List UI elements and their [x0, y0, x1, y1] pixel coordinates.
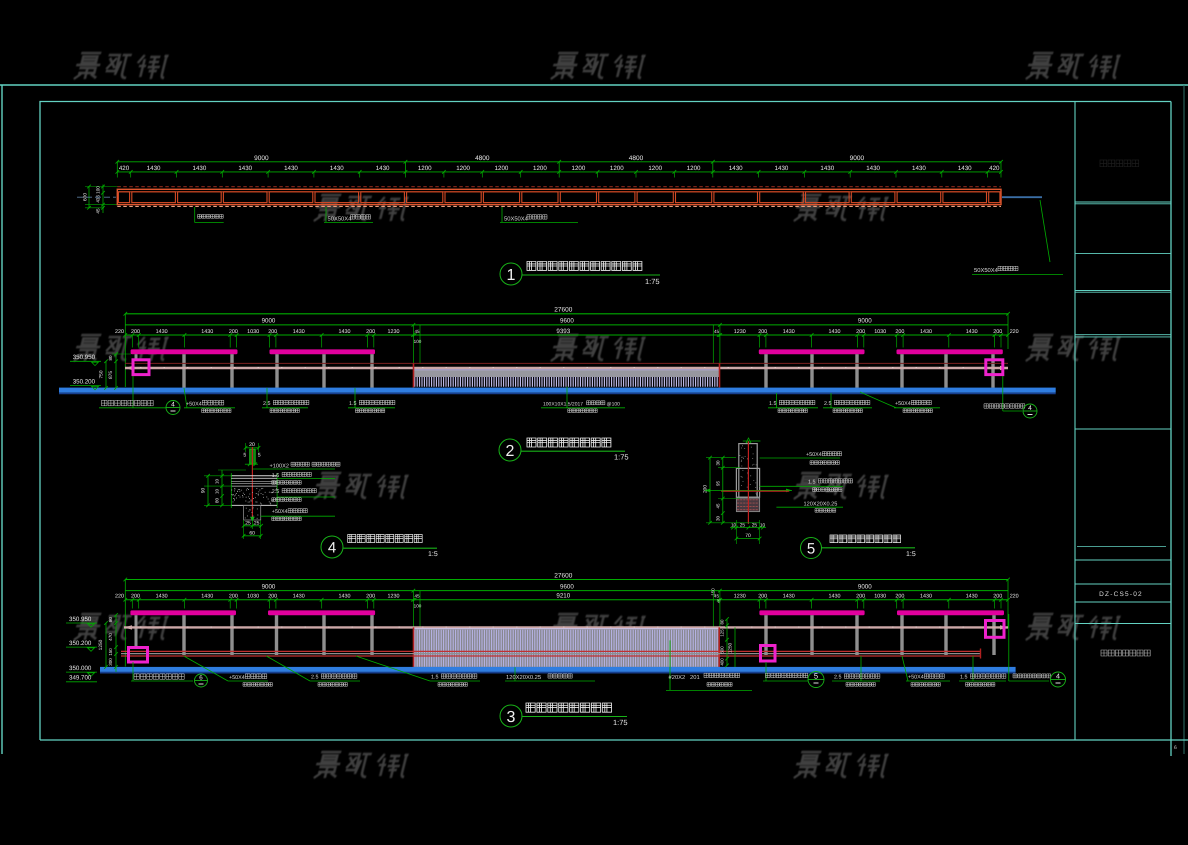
svg-text:350.950: 350.950 — [69, 616, 92, 623]
svg-text:1430: 1430 — [293, 594, 305, 600]
svg-text:2.5: 2.5 — [311, 675, 319, 681]
svg-text:1430: 1430 — [829, 329, 841, 335]
svg-text:1430: 1430 — [783, 594, 795, 600]
svg-text:1: 1 — [507, 267, 516, 284]
svg-text:45: 45 — [714, 329, 720, 334]
svg-text:1430: 1430 — [156, 594, 168, 600]
svg-text:#20X2: #20X2 — [669, 674, 686, 681]
svg-text:1030: 1030 — [247, 594, 259, 600]
svg-text:1200: 1200 — [648, 165, 662, 172]
svg-text:1030: 1030 — [874, 329, 886, 335]
svg-text:201: 201 — [690, 674, 700, 681]
svg-text:2: 2 — [506, 443, 515, 460]
svg-text:1.5: 1.5 — [769, 401, 777, 407]
svg-text:1430: 1430 — [958, 165, 972, 172]
svg-text:1:75: 1:75 — [645, 277, 660, 286]
svg-text:1430: 1430 — [966, 329, 978, 335]
svg-text:125: 125 — [720, 629, 725, 637]
svg-text:9000: 9000 — [262, 318, 276, 325]
svg-text:DZ-CS5-02: DZ-CS5-02 — [1099, 591, 1143, 598]
svg-text:200: 200 — [895, 329, 904, 335]
svg-text:220: 220 — [1010, 329, 1019, 335]
svg-text:500: 500 — [720, 646, 725, 654]
svg-text:200: 200 — [268, 594, 277, 600]
svg-text:1430: 1430 — [775, 165, 789, 172]
svg-text:1.5: 1.5 — [960, 675, 968, 681]
svg-text:300: 300 — [108, 658, 113, 666]
svg-text:1430: 1430 — [376, 165, 390, 172]
svg-text:750: 750 — [99, 370, 105, 378]
svg-text:27600: 27600 — [554, 572, 572, 579]
svg-text:2.5: 2.5 — [263, 401, 271, 407]
svg-text:1200: 1200 — [495, 165, 509, 172]
svg-text:30: 30 — [715, 516, 720, 522]
svg-text:200: 200 — [856, 594, 865, 600]
svg-text:200: 200 — [856, 329, 865, 335]
svg-text:1430: 1430 — [729, 165, 743, 172]
svg-text:1430: 1430 — [920, 594, 932, 600]
svg-text:1200: 1200 — [418, 165, 432, 172]
svg-text:1:75: 1:75 — [613, 718, 628, 727]
svg-text:80: 80 — [108, 617, 113, 623]
svg-text:10: 10 — [760, 522, 766, 527]
svg-text:1230: 1230 — [388, 329, 400, 335]
svg-text:90: 90 — [201, 488, 207, 494]
svg-text:5: 5 — [814, 672, 818, 681]
svg-text:45: 45 — [715, 503, 720, 509]
svg-text:435: 435 — [96, 195, 101, 203]
svg-text:9600: 9600 — [560, 318, 574, 325]
svg-text:2.5: 2.5 — [834, 675, 842, 681]
svg-text:10: 10 — [731, 522, 737, 527]
svg-text:200: 200 — [366, 594, 375, 600]
svg-text:1430: 1430 — [238, 165, 252, 172]
svg-text:1250: 1250 — [98, 639, 104, 650]
svg-text:1430: 1430 — [156, 329, 168, 335]
svg-text:1030: 1030 — [874, 594, 886, 600]
svg-text:45: 45 — [96, 208, 101, 214]
svg-text:200: 200 — [993, 329, 1002, 335]
svg-text:875: 875 — [108, 371, 114, 379]
svg-text:10: 10 — [215, 479, 220, 485]
svg-text:95: 95 — [715, 481, 720, 487]
svg-text:100: 100 — [414, 339, 422, 344]
svg-text:1:75: 1:75 — [614, 453, 629, 462]
svg-text:25: 25 — [254, 521, 260, 527]
svg-text:200: 200 — [366, 329, 375, 335]
svg-text:9393: 9393 — [556, 328, 570, 335]
svg-text:45: 45 — [414, 594, 420, 599]
svg-text:1430: 1430 — [912, 165, 926, 172]
svg-text:9600: 9600 — [560, 583, 574, 590]
svg-text:200: 200 — [131, 329, 140, 335]
svg-text:1430: 1430 — [783, 329, 795, 335]
svg-text:200: 200 — [229, 329, 238, 335]
svg-text:4800: 4800 — [629, 155, 644, 162]
svg-text:220: 220 — [115, 594, 124, 600]
svg-text:1250: 1250 — [728, 642, 733, 653]
svg-text:1:5: 1:5 — [428, 551, 438, 558]
svg-text:25: 25 — [740, 522, 746, 528]
svg-text:9210: 9210 — [556, 593, 570, 600]
svg-text:220: 220 — [115, 329, 124, 335]
svg-text:1230: 1230 — [388, 594, 400, 600]
svg-text:1430: 1430 — [330, 165, 344, 172]
svg-text:200: 200 — [131, 594, 140, 600]
svg-text:1430: 1430 — [284, 165, 298, 172]
svg-text:5: 5 — [243, 452, 246, 458]
svg-text:1430: 1430 — [966, 594, 978, 600]
svg-text:50X50X4: 50X50X4 — [504, 215, 529, 222]
svg-text:9000: 9000 — [262, 583, 276, 590]
svg-text:6: 6 — [1174, 745, 1177, 751]
svg-text:1430: 1430 — [920, 329, 932, 335]
svg-text:6: 6 — [199, 675, 203, 682]
svg-text:80: 80 — [720, 619, 725, 624]
svg-text:2.5: 2.5 — [824, 401, 832, 407]
svg-text:80: 80 — [215, 498, 220, 504]
svg-text:10: 10 — [215, 489, 220, 495]
svg-text:350.000: 350.000 — [69, 665, 92, 672]
svg-text:200: 200 — [758, 329, 767, 335]
svg-text:1200: 1200 — [572, 165, 586, 172]
svg-text:4: 4 — [1028, 405, 1032, 412]
svg-text:350.200: 350.200 — [69, 640, 92, 647]
svg-text:220: 220 — [1010, 594, 1019, 600]
svg-text:1.5: 1.5 — [431, 675, 439, 681]
svg-text:50X50X4: 50X50X4 — [328, 215, 353, 222]
svg-text:1200: 1200 — [456, 165, 470, 172]
svg-text:+50X4: +50X4 — [806, 452, 822, 458]
svg-text:1430: 1430 — [866, 165, 880, 172]
svg-text:25: 25 — [752, 522, 758, 528]
svg-text:9000: 9000 — [850, 155, 865, 162]
svg-text:+100X2: +100X2 — [270, 463, 289, 469]
svg-text:349.700: 349.700 — [69, 675, 92, 682]
svg-text:25: 25 — [245, 521, 251, 527]
svg-text:100: 100 — [96, 186, 101, 194]
svg-text:70: 70 — [745, 533, 751, 539]
svg-text:470: 470 — [108, 633, 113, 641]
svg-text:1430: 1430 — [339, 329, 351, 335]
svg-text:420: 420 — [989, 165, 1000, 172]
svg-text:30: 30 — [715, 460, 720, 466]
svg-text:200: 200 — [895, 594, 904, 600]
svg-text:100X10X1.5/2017: 100X10X1.5/2017 — [543, 401, 583, 407]
svg-text:5: 5 — [807, 541, 815, 558]
svg-text:1430: 1430 — [829, 594, 841, 600]
svg-text:200: 200 — [703, 485, 709, 493]
svg-text:27600: 27600 — [554, 307, 572, 314]
svg-text:3: 3 — [507, 709, 516, 726]
svg-text:9000: 9000 — [254, 155, 269, 162]
svg-text:45: 45 — [414, 329, 420, 334]
svg-text:420: 420 — [119, 165, 130, 172]
svg-text:120X20X0.25: 120X20X0.25 — [506, 674, 541, 681]
svg-text:+50X4: +50X4 — [908, 675, 924, 681]
svg-text:2.5: 2.5 — [272, 489, 280, 495]
svg-text:1200: 1200 — [533, 165, 547, 172]
svg-text:1230: 1230 — [734, 329, 746, 335]
svg-text:1.5: 1.5 — [272, 473, 280, 479]
svg-text:50X50X4: 50X50X4 — [974, 267, 999, 274]
svg-text:1200: 1200 — [610, 165, 624, 172]
svg-text:1430: 1430 — [293, 329, 305, 335]
svg-text:400: 400 — [720, 658, 725, 666]
svg-text:@100: @100 — [607, 401, 621, 407]
svg-text:+50X4: +50X4 — [895, 401, 911, 407]
svg-text:1:5: 1:5 — [906, 551, 916, 558]
svg-text:200: 200 — [229, 594, 238, 600]
svg-text:1030: 1030 — [247, 329, 259, 335]
svg-text:1200: 1200 — [687, 165, 701, 172]
svg-text:4: 4 — [1056, 673, 1060, 681]
svg-text:5: 5 — [258, 452, 261, 458]
svg-text:1430: 1430 — [339, 594, 351, 600]
svg-text:1.5: 1.5 — [349, 401, 357, 407]
svg-text:+50X4: +50X4 — [186, 402, 202, 408]
svg-text:9000: 9000 — [858, 318, 872, 325]
svg-text:200: 200 — [758, 594, 767, 600]
svg-text:4: 4 — [171, 402, 175, 409]
svg-text:100: 100 — [414, 604, 422, 609]
svg-text:200: 200 — [268, 329, 277, 335]
svg-text:1430: 1430 — [147, 165, 161, 172]
svg-text:+50X4: +50X4 — [272, 509, 288, 515]
svg-text:350.200: 350.200 — [73, 379, 96, 386]
svg-text:1430: 1430 — [201, 594, 213, 600]
svg-text:80: 80 — [108, 355, 113, 361]
svg-text:+50X4: +50X4 — [229, 675, 245, 681]
svg-text:350.950: 350.950 — [73, 354, 96, 361]
svg-text:4800: 4800 — [475, 155, 490, 162]
svg-text:120X20X0.25: 120X20X0.25 — [804, 501, 838, 507]
svg-text:1430: 1430 — [820, 165, 834, 172]
svg-text:200: 200 — [993, 594, 1002, 600]
svg-text:150: 150 — [108, 648, 113, 656]
svg-text:60: 60 — [249, 530, 255, 536]
svg-text:1430: 1430 — [201, 329, 213, 335]
svg-text:4: 4 — [328, 540, 336, 557]
svg-text:1.5: 1.5 — [808, 479, 816, 485]
svg-text:1430: 1430 — [193, 165, 207, 172]
svg-text:1230: 1230 — [734, 594, 746, 600]
svg-text:9000: 9000 — [858, 583, 872, 590]
svg-text:45: 45 — [717, 598, 722, 603]
